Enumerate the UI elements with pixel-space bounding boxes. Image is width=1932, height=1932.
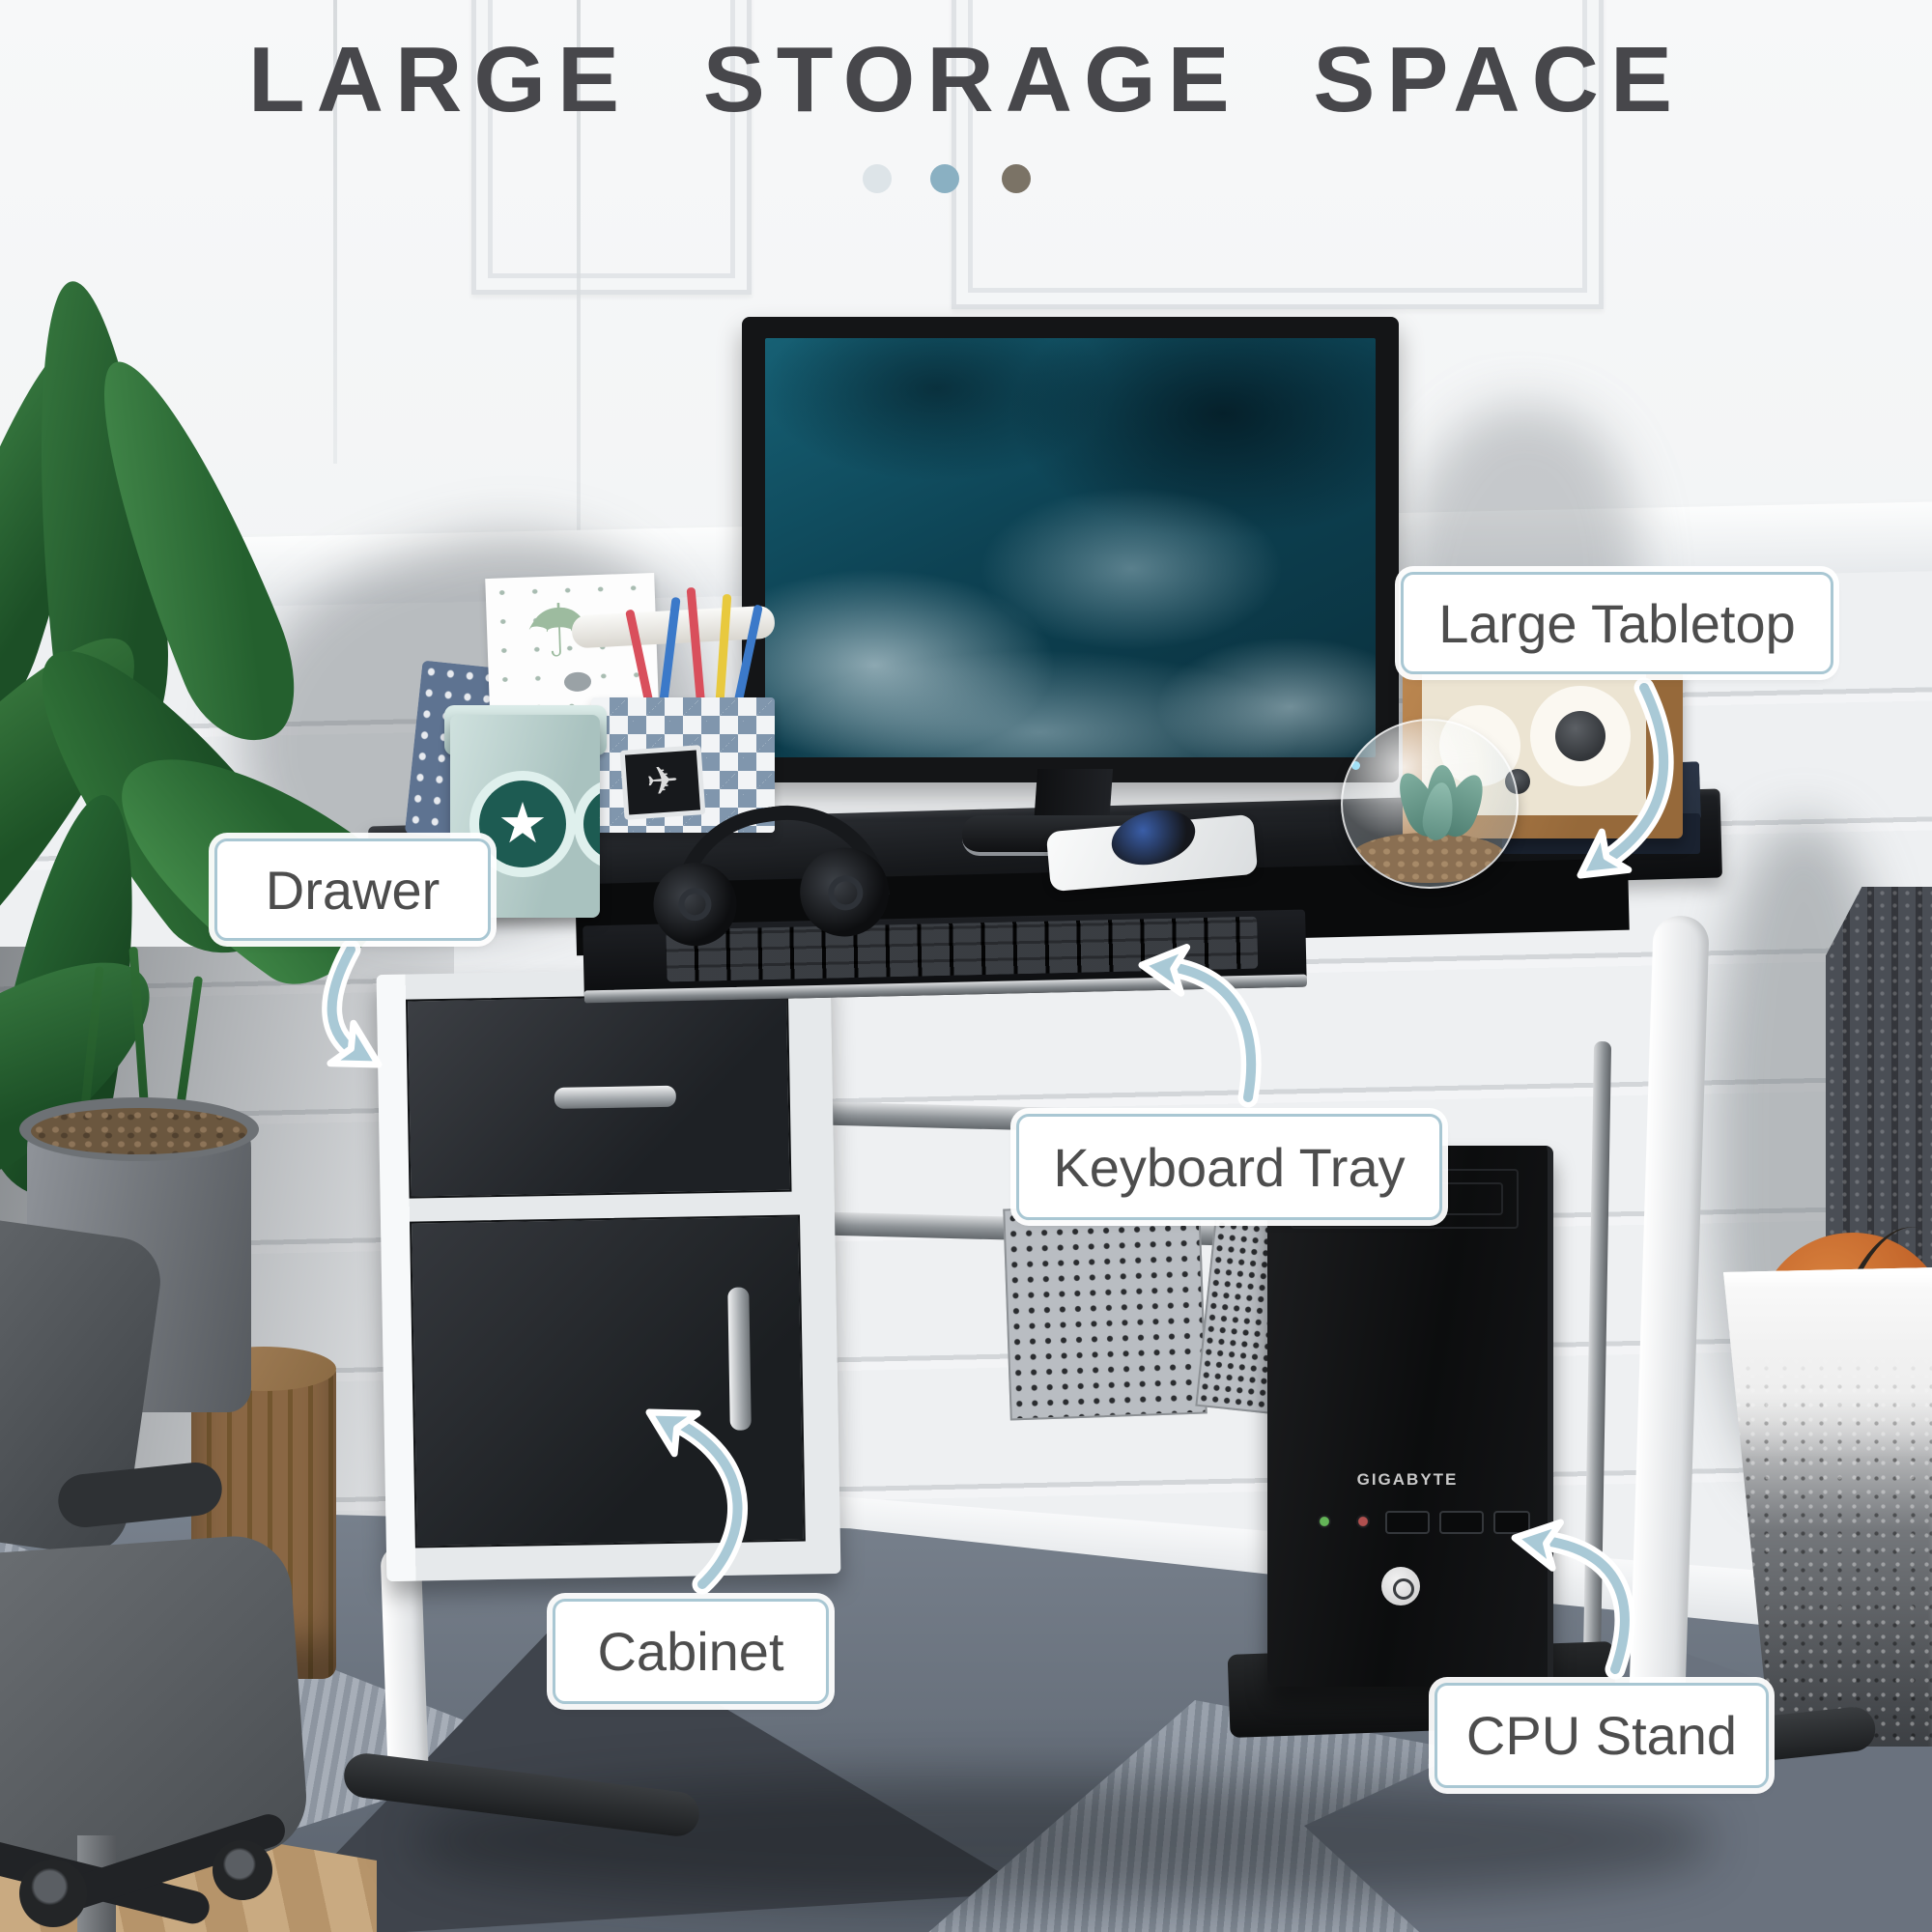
radio-knob [1555, 711, 1605, 761]
callout-drawer: Drawer [214, 838, 491, 941]
page-title: LARGE STORAGE SPACE [0, 27, 1932, 133]
callout-cabinet: Cabinet [553, 1599, 829, 1704]
star-icon: ★ [479, 781, 566, 867]
usb-port [1385, 1511, 1430, 1534]
cpu-tower: GIGABYTE [1267, 1146, 1553, 1687]
terrarium-pebbles [1350, 833, 1507, 883]
callout-keyboard-tray: Keyboard Tray [1016, 1114, 1442, 1220]
chair-caster-wheel [213, 1840, 272, 1900]
cabinet-door [410, 1215, 806, 1548]
plant-pot-pebbles [31, 1108, 247, 1154]
product-infographic: GIGABYTE ☂ ✈ ★ ★ [0, 0, 1932, 1932]
callout-cpu-stand: CPU Stand [1435, 1683, 1769, 1788]
drawer-front [406, 993, 792, 1199]
monitor-screen-ocean-wallpaper [765, 338, 1376, 757]
drawer-handle [554, 1086, 676, 1109]
storage-pedestal [377, 967, 841, 1581]
power-button [1381, 1567, 1420, 1605]
paper-plane-icon: ✈ [620, 745, 706, 820]
cpu-brand-label: GIGABYTE [1267, 1470, 1548, 1490]
usb-port [1493, 1511, 1530, 1534]
chair-caster-wheel [19, 1860, 87, 1927]
star-icon: ★ [583, 788, 600, 860]
audio-jack-green [1318, 1515, 1331, 1528]
glass-terrarium [1341, 719, 1519, 889]
callout-large-tabletop: Large Tabletop [1401, 572, 1833, 674]
power-icon [1393, 1578, 1414, 1600]
star-badge-side: ★ [574, 779, 600, 869]
mouse-doodle [564, 671, 592, 692]
usb-port [1439, 1511, 1484, 1534]
pagination-dot [930, 164, 959, 193]
earcup-ring [676, 886, 713, 923]
cabinet-handle [727, 1287, 752, 1430]
pagination-dot [863, 164, 892, 193]
mesh-panel [1003, 1203, 1207, 1421]
audio-jack-red [1356, 1515, 1370, 1528]
earcup-ring [826, 873, 866, 913]
monitor [742, 317, 1399, 782]
pagination-dot [1002, 164, 1031, 193]
